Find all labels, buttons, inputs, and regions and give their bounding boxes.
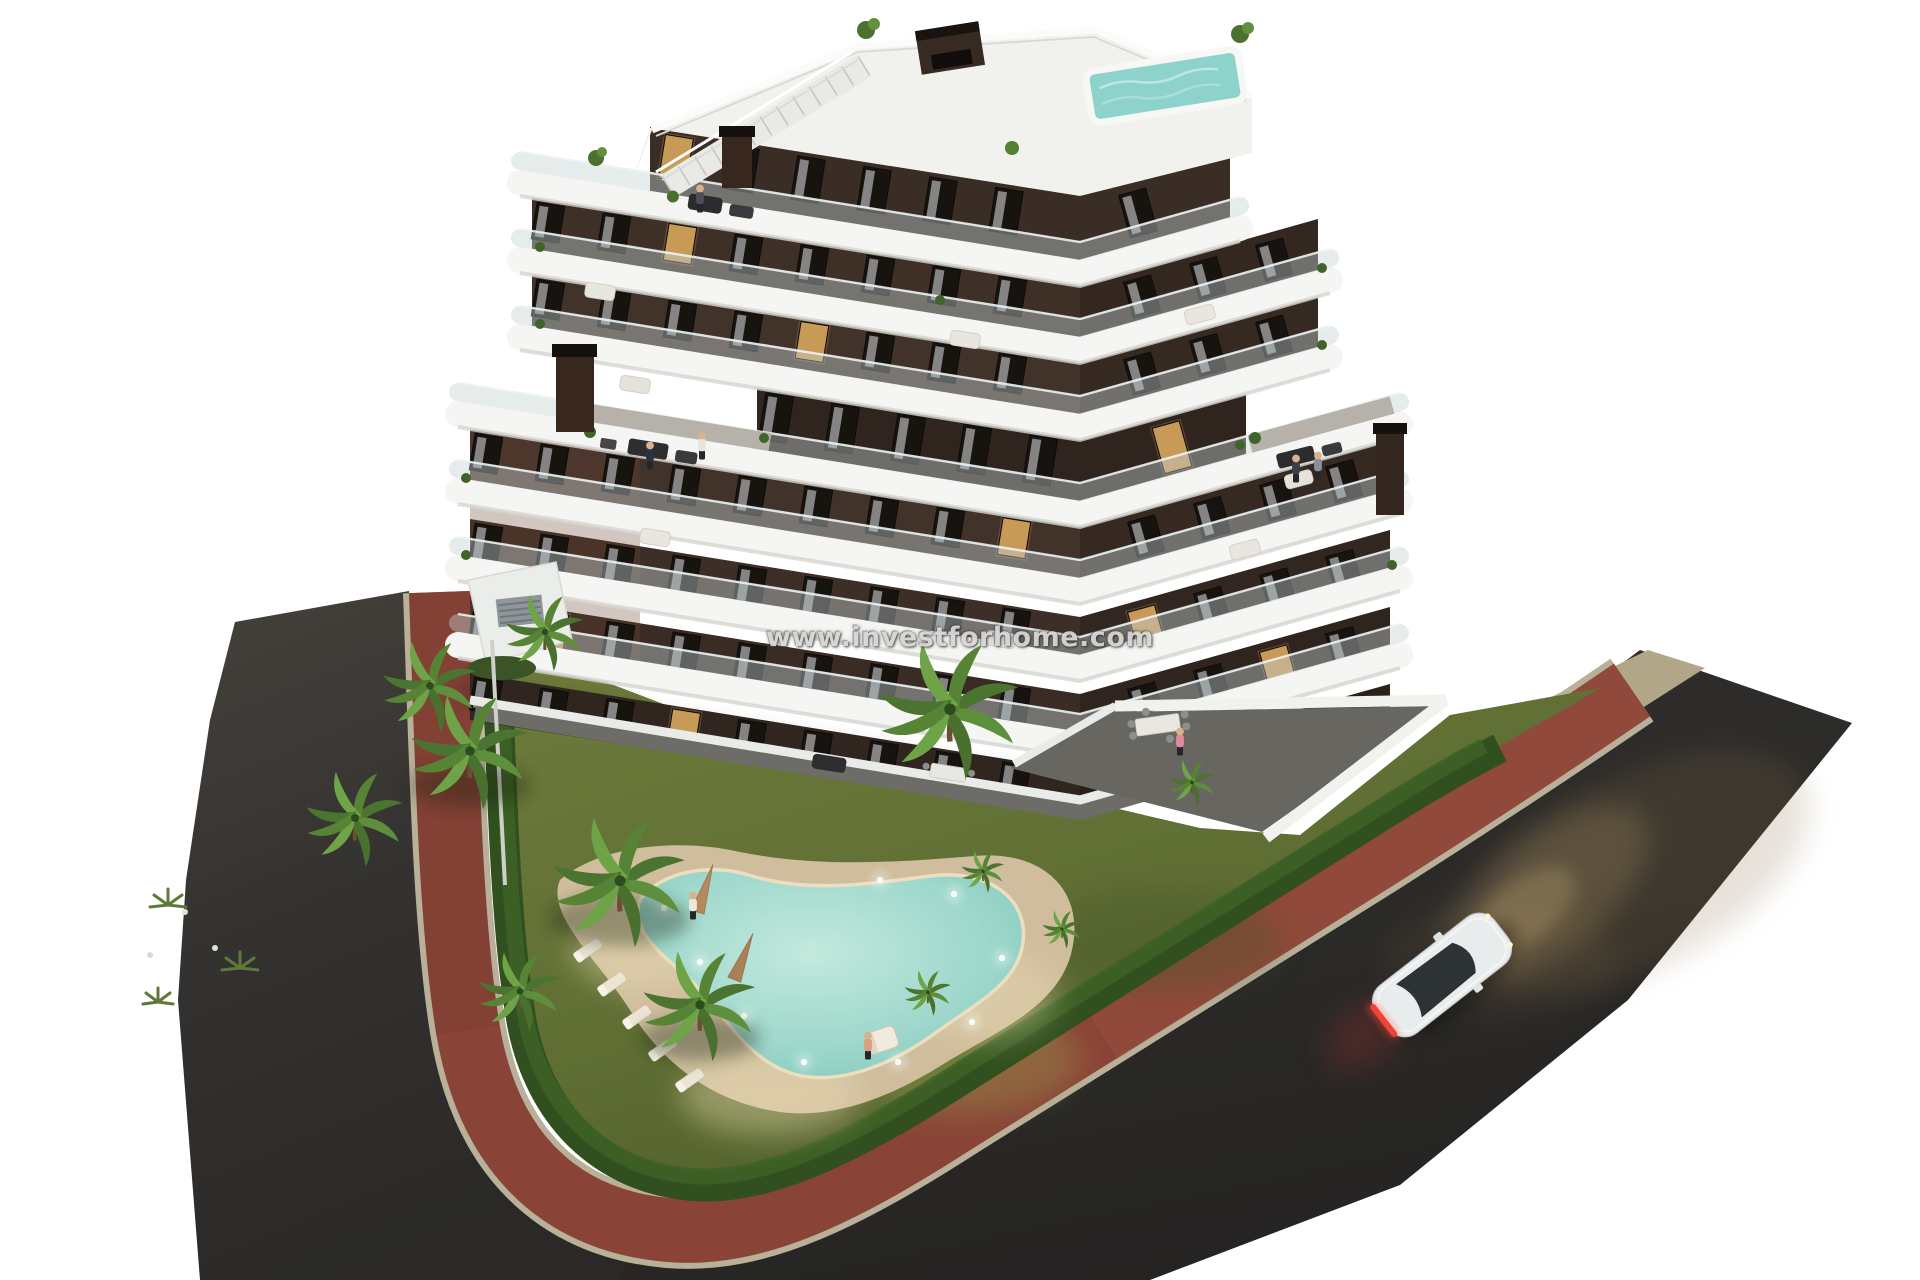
render-scene: www.investforhome.com — [0, 0, 1920, 1280]
garden-wall — [1115, 700, 1446, 706]
watermark: www.investforhome.com — [0, 622, 1920, 653]
